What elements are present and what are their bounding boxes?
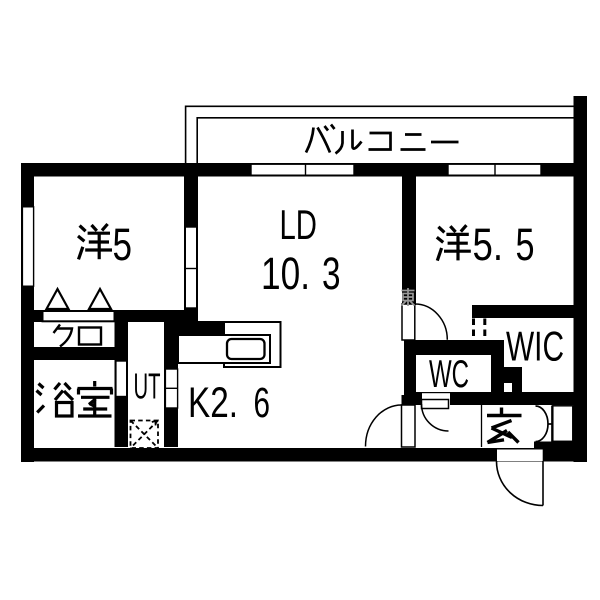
svg-text:5.: 5. [473,219,504,270]
svg-text:WC: WC [429,353,469,396]
svg-text:UT: UT [134,366,161,407]
svg-text:K2.: K2. [188,379,238,427]
svg-text:5: 5 [516,219,535,270]
svg-text:6: 6 [254,379,271,427]
svg-text:10.: 10. [261,248,310,299]
svg-text:WIC: WIC [506,323,564,370]
svg-text:3: 3 [322,248,341,299]
svg-text:LD: LD [280,201,318,248]
svg-text:5: 5 [113,219,133,270]
